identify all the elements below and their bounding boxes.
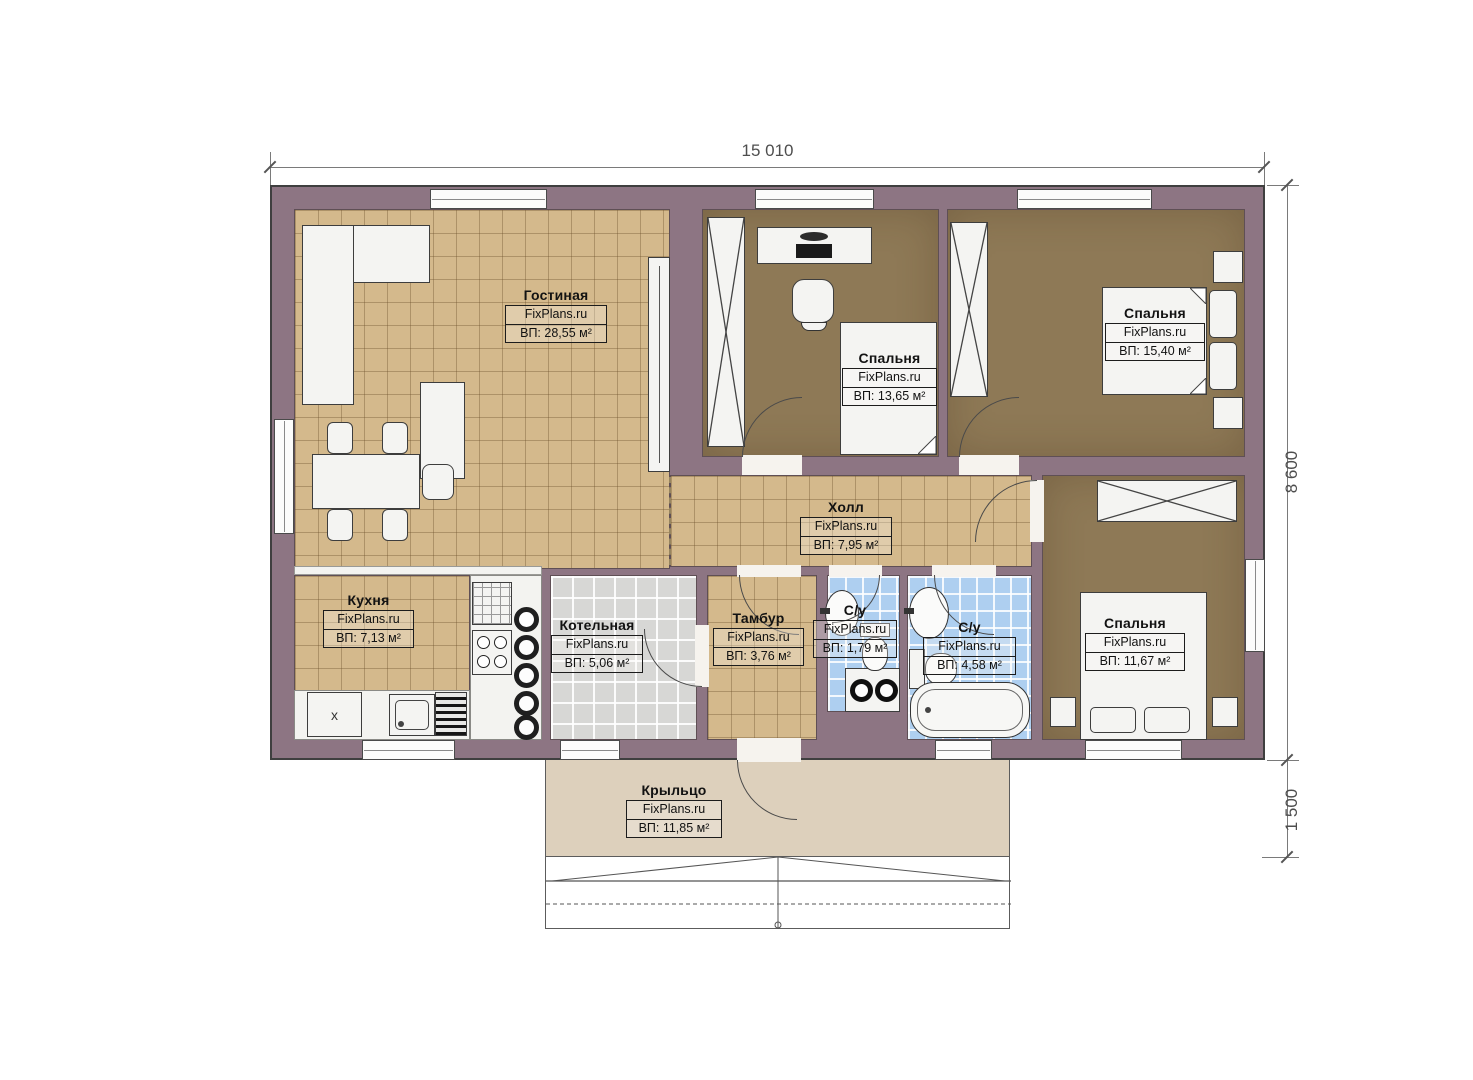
laptop-lid-icon — [800, 232, 828, 241]
boiler-ring — [514, 691, 539, 716]
watermark: FixPlans.ru — [924, 638, 1015, 656]
window-bottom-boiler — [560, 740, 620, 760]
kitchen-sink — [389, 694, 435, 736]
dimension-depth-label: 8 600 — [1282, 442, 1302, 502]
door-opening-bedroom-2 — [959, 455, 1019, 475]
room-label-wc-small: С/у FixPlans.ru ВП: 1,79 м² — [813, 602, 897, 658]
dimension-width-label: 15 010 — [270, 141, 1265, 161]
fridge-x-marker: x — [331, 707, 338, 723]
wardrobe-bedroom-3 — [1097, 480, 1237, 522]
window-right-bedroom-3 — [1245, 559, 1265, 652]
window-bottom-bathroom — [935, 740, 992, 760]
boiler-ring — [514, 663, 539, 688]
bathtub — [910, 682, 1030, 738]
room-label-kitchen: Кухня FixPlans.ru ВП: 7,13 м² — [323, 592, 414, 648]
window-bottom-kitchen — [362, 740, 455, 760]
washer-drum-icon — [850, 679, 873, 702]
room-label-bedroom-1: Спальня FixPlans.ru ВП: 13,65 м² — [842, 350, 937, 406]
nightstand — [1213, 251, 1243, 283]
kitchen-opening — [294, 566, 542, 575]
room-name: Котельная — [551, 617, 643, 633]
room-area: ВП: 7,13 м² — [324, 629, 413, 648]
dining-chair — [327, 422, 353, 454]
faucet-dot — [398, 721, 404, 727]
room-name: С/у — [813, 602, 897, 618]
stove — [472, 630, 512, 675]
porch-steps — [545, 857, 1010, 929]
room-area: ВП: 15,40 м² — [1106, 342, 1204, 361]
window-bottom-bedroom-3 — [1085, 740, 1182, 760]
boiler-ring — [514, 715, 539, 740]
extension-line — [1262, 857, 1299, 858]
room-label-wc-big: С/у FixPlans.ru ВП: 4,58 м² — [923, 619, 1016, 675]
room-label-hall: Холл FixPlans.ru ВП: 7,95 м² — [800, 499, 892, 555]
desk — [757, 227, 872, 264]
room-area: ВП: 13,65 м² — [843, 387, 936, 406]
faucet-icon — [904, 608, 914, 614]
watermark: FixPlans.ru — [1086, 634, 1184, 652]
room-area: ВП: 4,58 м² — [924, 656, 1015, 675]
nightstand — [1212, 697, 1238, 727]
window-top-bedroom-1 — [755, 189, 874, 209]
nightstand — [1213, 397, 1243, 429]
dining-chair-head — [422, 464, 454, 500]
office-chair — [792, 279, 834, 323]
wardrobe-bedroom-1 — [707, 217, 745, 447]
window-top-bedroom-2 — [1017, 189, 1152, 209]
room-name: Спальня — [842, 350, 937, 366]
dining-table — [312, 454, 420, 509]
door-opening-bedroom-1 — [742, 455, 802, 475]
room-area: ВП: 11,67 м² — [1086, 652, 1184, 671]
pillow — [1209, 342, 1237, 390]
room-label-boiler: Котельная FixPlans.ru ВП: 5,06 м² — [551, 617, 643, 673]
dimension-porch-label: 1 500 — [1282, 780, 1302, 840]
window-left-living — [274, 419, 294, 534]
dish-rack — [435, 692, 467, 736]
steps-drawing — [546, 857, 1011, 929]
room-area: ВП: 3,76 м² — [714, 647, 803, 666]
room-area: ВП: 1,79 м² — [814, 639, 896, 658]
room-name: Кухня — [323, 592, 414, 608]
pillow — [1209, 290, 1237, 338]
dimension-line-top — [270, 167, 1265, 168]
boiler-ring — [514, 635, 539, 660]
fridge-placeholder: x — [307, 692, 362, 737]
burner-icon — [494, 655, 507, 668]
floorplan-canvas: x — [0, 0, 1473, 1080]
tv-unit-line — [659, 266, 660, 463]
floor-plan: x — [270, 185, 1265, 760]
watermark: FixPlans.ru — [801, 518, 891, 536]
burner-icon — [494, 636, 507, 649]
bathtub-drain — [925, 707, 931, 713]
room-area: ВП: 28,55 м² — [506, 324, 606, 343]
room-area: ВП: 5,06 м² — [552, 654, 642, 673]
room-area: ВП: 11,85 м² — [627, 819, 721, 838]
watermark: FixPlans.ru — [552, 636, 642, 654]
room-name: Тамбур — [713, 610, 804, 626]
watermark: FixPlans.ru — [506, 306, 606, 324]
room-name: Спальня — [1105, 305, 1205, 321]
room-label-porch: Крыльцо FixPlans.ru ВП: 11,85 м² — [626, 782, 722, 838]
watermark: FixPlans.ru — [714, 629, 803, 647]
sofa-vertical — [302, 225, 354, 405]
laptop-icon — [796, 244, 832, 258]
watermark: FixPlans.ru — [324, 611, 413, 629]
room-label-living: Гостиная FixPlans.ru ВП: 28,55 м² — [505, 287, 607, 343]
burner-icon — [477, 636, 490, 649]
room-name: С/у — [923, 619, 1016, 635]
room-label-bedroom-2: Спальня FixPlans.ru ВП: 15,40 м² — [1105, 305, 1205, 361]
chair-base — [801, 322, 827, 331]
room-name: Холл — [800, 499, 892, 515]
front-door-opening — [737, 738, 801, 762]
room-name: Спальня — [1085, 615, 1185, 631]
room-label-bedroom-3: Спальня FixPlans.ru ВП: 11,67 м² — [1085, 615, 1185, 671]
wardrobe-bedroom-2 — [950, 222, 988, 397]
bathtub-inner — [917, 689, 1023, 731]
room-name: Крыльцо — [626, 782, 722, 798]
pillow — [1090, 707, 1136, 733]
window-top-living — [430, 189, 547, 209]
room-name: Гостиная — [505, 287, 607, 303]
tv-unit — [648, 257, 670, 472]
watermark: FixPlans.ru — [814, 621, 896, 639]
dining-chair — [382, 422, 408, 454]
room-area: ВП: 7,95 м² — [801, 536, 891, 555]
pillow — [1144, 707, 1190, 733]
burner-icon — [477, 655, 490, 668]
dining-chair — [327, 509, 353, 541]
watermark: FixPlans.ru — [843, 369, 936, 387]
hall-opening-dashes — [669, 477, 671, 565]
nightstand — [1050, 697, 1076, 727]
boiler-ring — [514, 607, 539, 632]
room-label-tambour: Тамбур FixPlans.ru ВП: 3,76 м² — [713, 610, 804, 666]
washing-machine — [845, 668, 900, 712]
watermark: FixPlans.ru — [1106, 324, 1204, 342]
kitchen-appliance — [472, 582, 512, 625]
watermark: FixPlans.ru — [627, 801, 721, 819]
dining-chair — [382, 509, 408, 541]
washer-drum-icon — [875, 679, 898, 702]
